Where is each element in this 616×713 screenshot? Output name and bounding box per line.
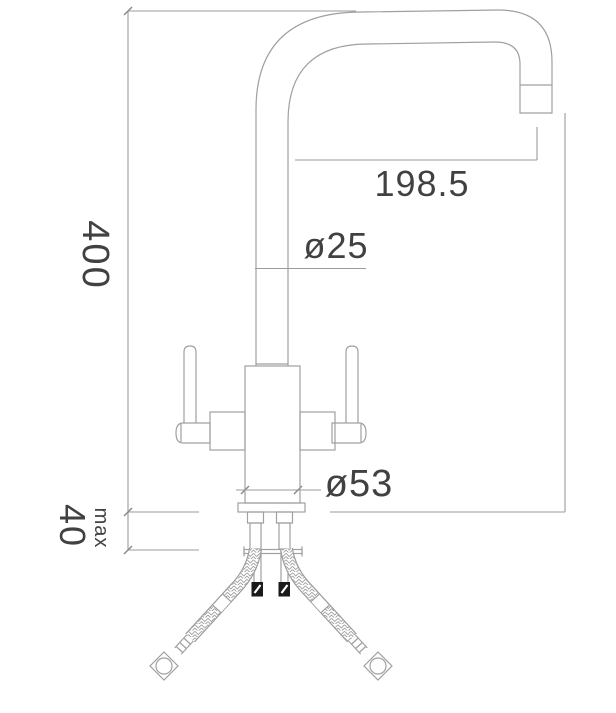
left-handle-connector: [210, 412, 245, 450]
base-flange: [238, 503, 305, 512]
faucet-body-column: [245, 366, 300, 503]
left-lever-rod: [184, 346, 196, 423]
left-hose-nut: [150, 652, 178, 680]
drawing-canvas: 400 40 max 198.5 ø25 ø53: [0, 0, 616, 713]
label-counter-thickness: 40: [52, 504, 93, 548]
label-base-diameter: ø53: [325, 463, 393, 505]
left-tailpiece: [248, 512, 264, 549]
right-handle: [300, 346, 366, 450]
label-total-height: 400: [74, 220, 116, 289]
right-handle-connector: [300, 412, 335, 450]
dimension-labels: 400 40 max 198.5 ø25 ø53: [52, 163, 470, 548]
right-lever-rod: [346, 346, 358, 423]
faucet-technical-drawing: 400 40 max 198.5 ø25 ø53: [0, 0, 616, 713]
label-counter-thickness-qualifier: max: [90, 508, 112, 549]
label-tube-diameter: ø25: [303, 225, 368, 266]
label-spout-reach: 198.5: [374, 163, 469, 204]
spout-aerator-tip: [520, 85, 552, 113]
left-supply-hose: [150, 549, 256, 680]
spout-inner-profile: [288, 42, 520, 366]
right-hose-nut: [364, 652, 392, 680]
dimension-ticks: [124, 7, 302, 554]
right-supply-hose: [287, 549, 393, 680]
right-tailpiece: [277, 512, 293, 549]
reach-dimension-line: [295, 127, 537, 160]
under-counter-assembly: [150, 512, 392, 680]
left-handle: [176, 346, 245, 450]
